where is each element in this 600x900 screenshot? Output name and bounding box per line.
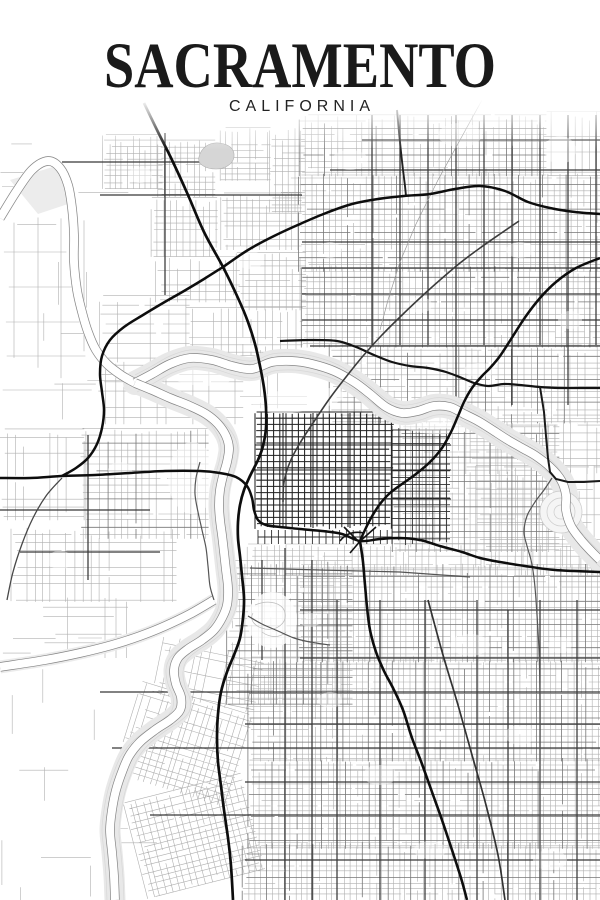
svg-text:SACRAMENTO: SACRAMENTO [104,30,496,102]
svg-text:CALIFORNIA: CALIFORNIA [229,98,375,115]
